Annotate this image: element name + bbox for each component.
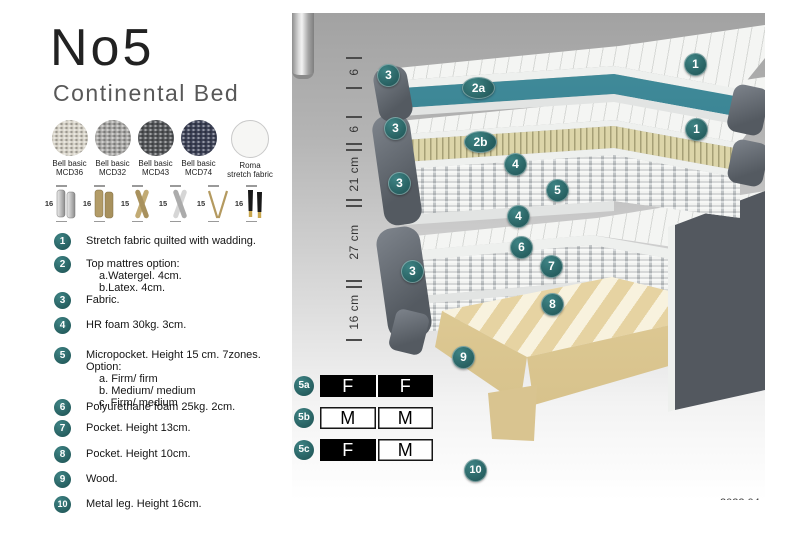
- firmness-cell: F: [320, 439, 376, 461]
- leg-height: 16: [235, 199, 243, 208]
- leg-icon-cylinder-silver: [54, 189, 78, 219]
- swatch-label: Bell basic: [179, 159, 218, 168]
- legend-text: HR foam 30kg. 3cm.: [86, 319, 186, 331]
- callout-6-polyfoam: 6: [510, 236, 533, 259]
- callout-1-mattress: 1: [685, 118, 708, 141]
- swatch-code: MCD43: [136, 168, 175, 177]
- swatch-code: MCD36: [50, 168, 89, 177]
- firmness-row-badge: 5c: [294, 440, 314, 460]
- legend-text: Wood.: [86, 473, 118, 485]
- legend-subtext: b. Medium/ medium: [99, 385, 294, 397]
- leg-height: 16: [45, 199, 53, 208]
- page-title: No5: [50, 18, 154, 78]
- firmness-row-5a: 5a F F: [294, 375, 434, 397]
- legend-number-badge: 3: [54, 292, 71, 309]
- leg-option: 15: [158, 184, 193, 223]
- fabric-swatch: Bell basicMCD74: [179, 120, 218, 179]
- fabric-swatch: Romastretch fabric: [222, 120, 278, 179]
- legend-text: Stretch fabric quilted with wadding.: [86, 235, 256, 247]
- dimension-label: 27 cm: [346, 212, 362, 272]
- legend-number-badge: 10: [54, 496, 71, 513]
- measure-dash: [56, 185, 67, 187]
- firmness-row-5b: 5b M M: [294, 407, 434, 429]
- fabric-swatch-icon: [138, 120, 174, 156]
- leg-option: 16: [234, 184, 269, 223]
- legend-text: Polyurethane foam 25kg. 2cm.: [86, 401, 235, 413]
- fabric-swatch-icon: [181, 120, 217, 156]
- legend-item: 7 Pocket. Height 13cm.: [54, 420, 294, 437]
- legend-text: Fabric.: [86, 294, 120, 306]
- measure-dash: [56, 221, 67, 223]
- swatch-label: Bell basic: [50, 159, 89, 168]
- legend-item: 3 Fabric.: [54, 292, 294, 309]
- bed-leg-front: [292, 13, 314, 79]
- firmness-cell: M: [378, 407, 434, 429]
- legend-text: Pocket. Height 13cm.: [86, 422, 191, 434]
- callout-2a-watergel: 2a: [462, 77, 495, 99]
- version-date: 2022.04: [720, 497, 760, 500]
- diagram-panel: 6 6 21 cm 27 cm 16 cm 1 1 2a 2b 3 3 3 3 …: [292, 13, 765, 500]
- leg-option: 15: [196, 184, 231, 223]
- legend-number-badge: 7: [54, 420, 71, 437]
- legend-number-badge: 8: [54, 446, 71, 463]
- page-subtitle: Continental Bed: [53, 80, 239, 107]
- swatch-code: stretch fabric: [222, 170, 278, 179]
- leg-height: 15: [159, 199, 167, 208]
- dimension-label: 21 cm: [346, 144, 362, 204]
- measure-dash: [208, 185, 219, 187]
- callout-1-topper: 1: [684, 53, 707, 76]
- measure-dash: [94, 221, 105, 223]
- legend-text: Pocket. Height 10cm.: [86, 448, 191, 460]
- firmness-cell: F: [320, 375, 376, 397]
- firmness-cell: M: [378, 439, 434, 461]
- swatch-code: MCD74: [179, 168, 218, 177]
- leg-option: 16: [44, 184, 79, 223]
- swatch-code: MCD32: [93, 168, 132, 177]
- swatch-label: Bell basic: [136, 159, 175, 168]
- leg-height: 15: [197, 199, 205, 208]
- legend-number-badge: 9: [54, 471, 71, 488]
- measure-dash: [208, 221, 219, 223]
- measure-dash: [132, 221, 143, 223]
- firmness-row-badge: 5a: [294, 376, 314, 396]
- leg-options-row: 16 16 15 15 15 16: [44, 184, 269, 223]
- leg-height: 15: [121, 199, 129, 208]
- measure-dash: [132, 185, 143, 187]
- fabric-swatch-row: Bell basicMCD36 Bell basicMCD32 Bell bas…: [50, 120, 278, 179]
- swatch-label: Bell basic: [93, 159, 132, 168]
- legend-text: Metal leg. Height 16cm.: [86, 498, 202, 510]
- legend-number-badge: 5: [54, 347, 71, 364]
- legend-number-badge: 2: [54, 256, 71, 273]
- callout-7-pocket13: 7: [540, 255, 563, 278]
- leg-icon-tapered-black-gold: [244, 189, 268, 219]
- leg-icon-cross-silver: [168, 189, 192, 219]
- callout-3-mattress-fabric: 3: [384, 117, 407, 140]
- legend-item: 4 HR foam 30kg. 3cm.: [54, 317, 294, 334]
- fabric-swatch: Bell basicMCD32: [93, 120, 132, 179]
- callout-4-hr-foam-top: 4: [504, 153, 527, 176]
- fabric-swatch-icon: [95, 120, 131, 156]
- fabric-swatch-icon: [52, 120, 88, 156]
- measure-dash: [94, 185, 105, 187]
- dimension-label: 16 cm: [346, 282, 362, 342]
- firmness-row-badge: 5b: [294, 408, 314, 428]
- leg-height: 16: [83, 199, 91, 208]
- callout-4-hr-foam-bottom: 4: [507, 205, 530, 228]
- legend-item: 8 Pocket. Height 10cm.: [54, 446, 294, 463]
- firmness-cell: M: [320, 407, 376, 429]
- fabric-swatch: Bell basicMCD36: [50, 120, 89, 179]
- leg-icon-hairpin-gold: [206, 189, 230, 219]
- callout-2b-latex: 2b: [464, 131, 497, 153]
- legend-item: 10 Metal leg. Height 16cm.: [54, 496, 294, 513]
- leg-icon-cylinder-gold: [92, 189, 116, 219]
- legend-number-badge: 6: [54, 399, 71, 416]
- measure-dash: [170, 221, 181, 223]
- callout-3-mattress-side: 3: [388, 172, 411, 195]
- leg-option: 16: [82, 184, 117, 223]
- fabric-swatch-icon: [231, 120, 269, 158]
- callout-10-metal-leg: 10: [464, 459, 487, 482]
- fabric-swatch: Bell basicMCD43: [136, 120, 175, 179]
- legend-number-badge: 4: [54, 317, 71, 334]
- legend-item: 6 Polyurethane foam 25kg. 2cm.: [54, 399, 294, 416]
- legend-item: 1 Stretch fabric quilted with wadding.: [54, 233, 294, 250]
- leg-option: 15: [120, 184, 155, 223]
- measure-dash: [246, 185, 257, 187]
- legend-number-badge: 1: [54, 233, 71, 250]
- leg-icon-cross-gold: [130, 189, 154, 219]
- swatch-label: Roma: [222, 161, 278, 170]
- legend-subtext: a. Firm/ firm: [99, 373, 294, 385]
- firmness-cell: F: [378, 375, 434, 397]
- dimension-label: 6: [346, 42, 362, 102]
- callout-8-pocket10: 8: [541, 293, 564, 316]
- callout-3-box-fabric: 3: [401, 260, 424, 283]
- legend-text: Micropocket. Height 15 cm. 7zones. Optio…: [86, 349, 294, 373]
- legend-text: Top mattres option:: [86, 258, 182, 270]
- callout-3-topper-fabric: 3: [377, 64, 400, 87]
- callout-9-wood: 9: [452, 346, 475, 369]
- legend-item: 9 Wood.: [54, 471, 294, 488]
- ruler-tick: [346, 205, 362, 207]
- legend-item: 2 Top mattres option: a.Watergel. 4cm. b…: [54, 256, 294, 294]
- firmness-row-5c: 5c F M: [294, 439, 434, 461]
- measure-dash: [170, 185, 181, 187]
- measure-dash: [246, 221, 257, 223]
- callout-5-micropocket: 5: [546, 179, 569, 202]
- legend-subtext: a.Watergel. 4cm.: [99, 270, 182, 282]
